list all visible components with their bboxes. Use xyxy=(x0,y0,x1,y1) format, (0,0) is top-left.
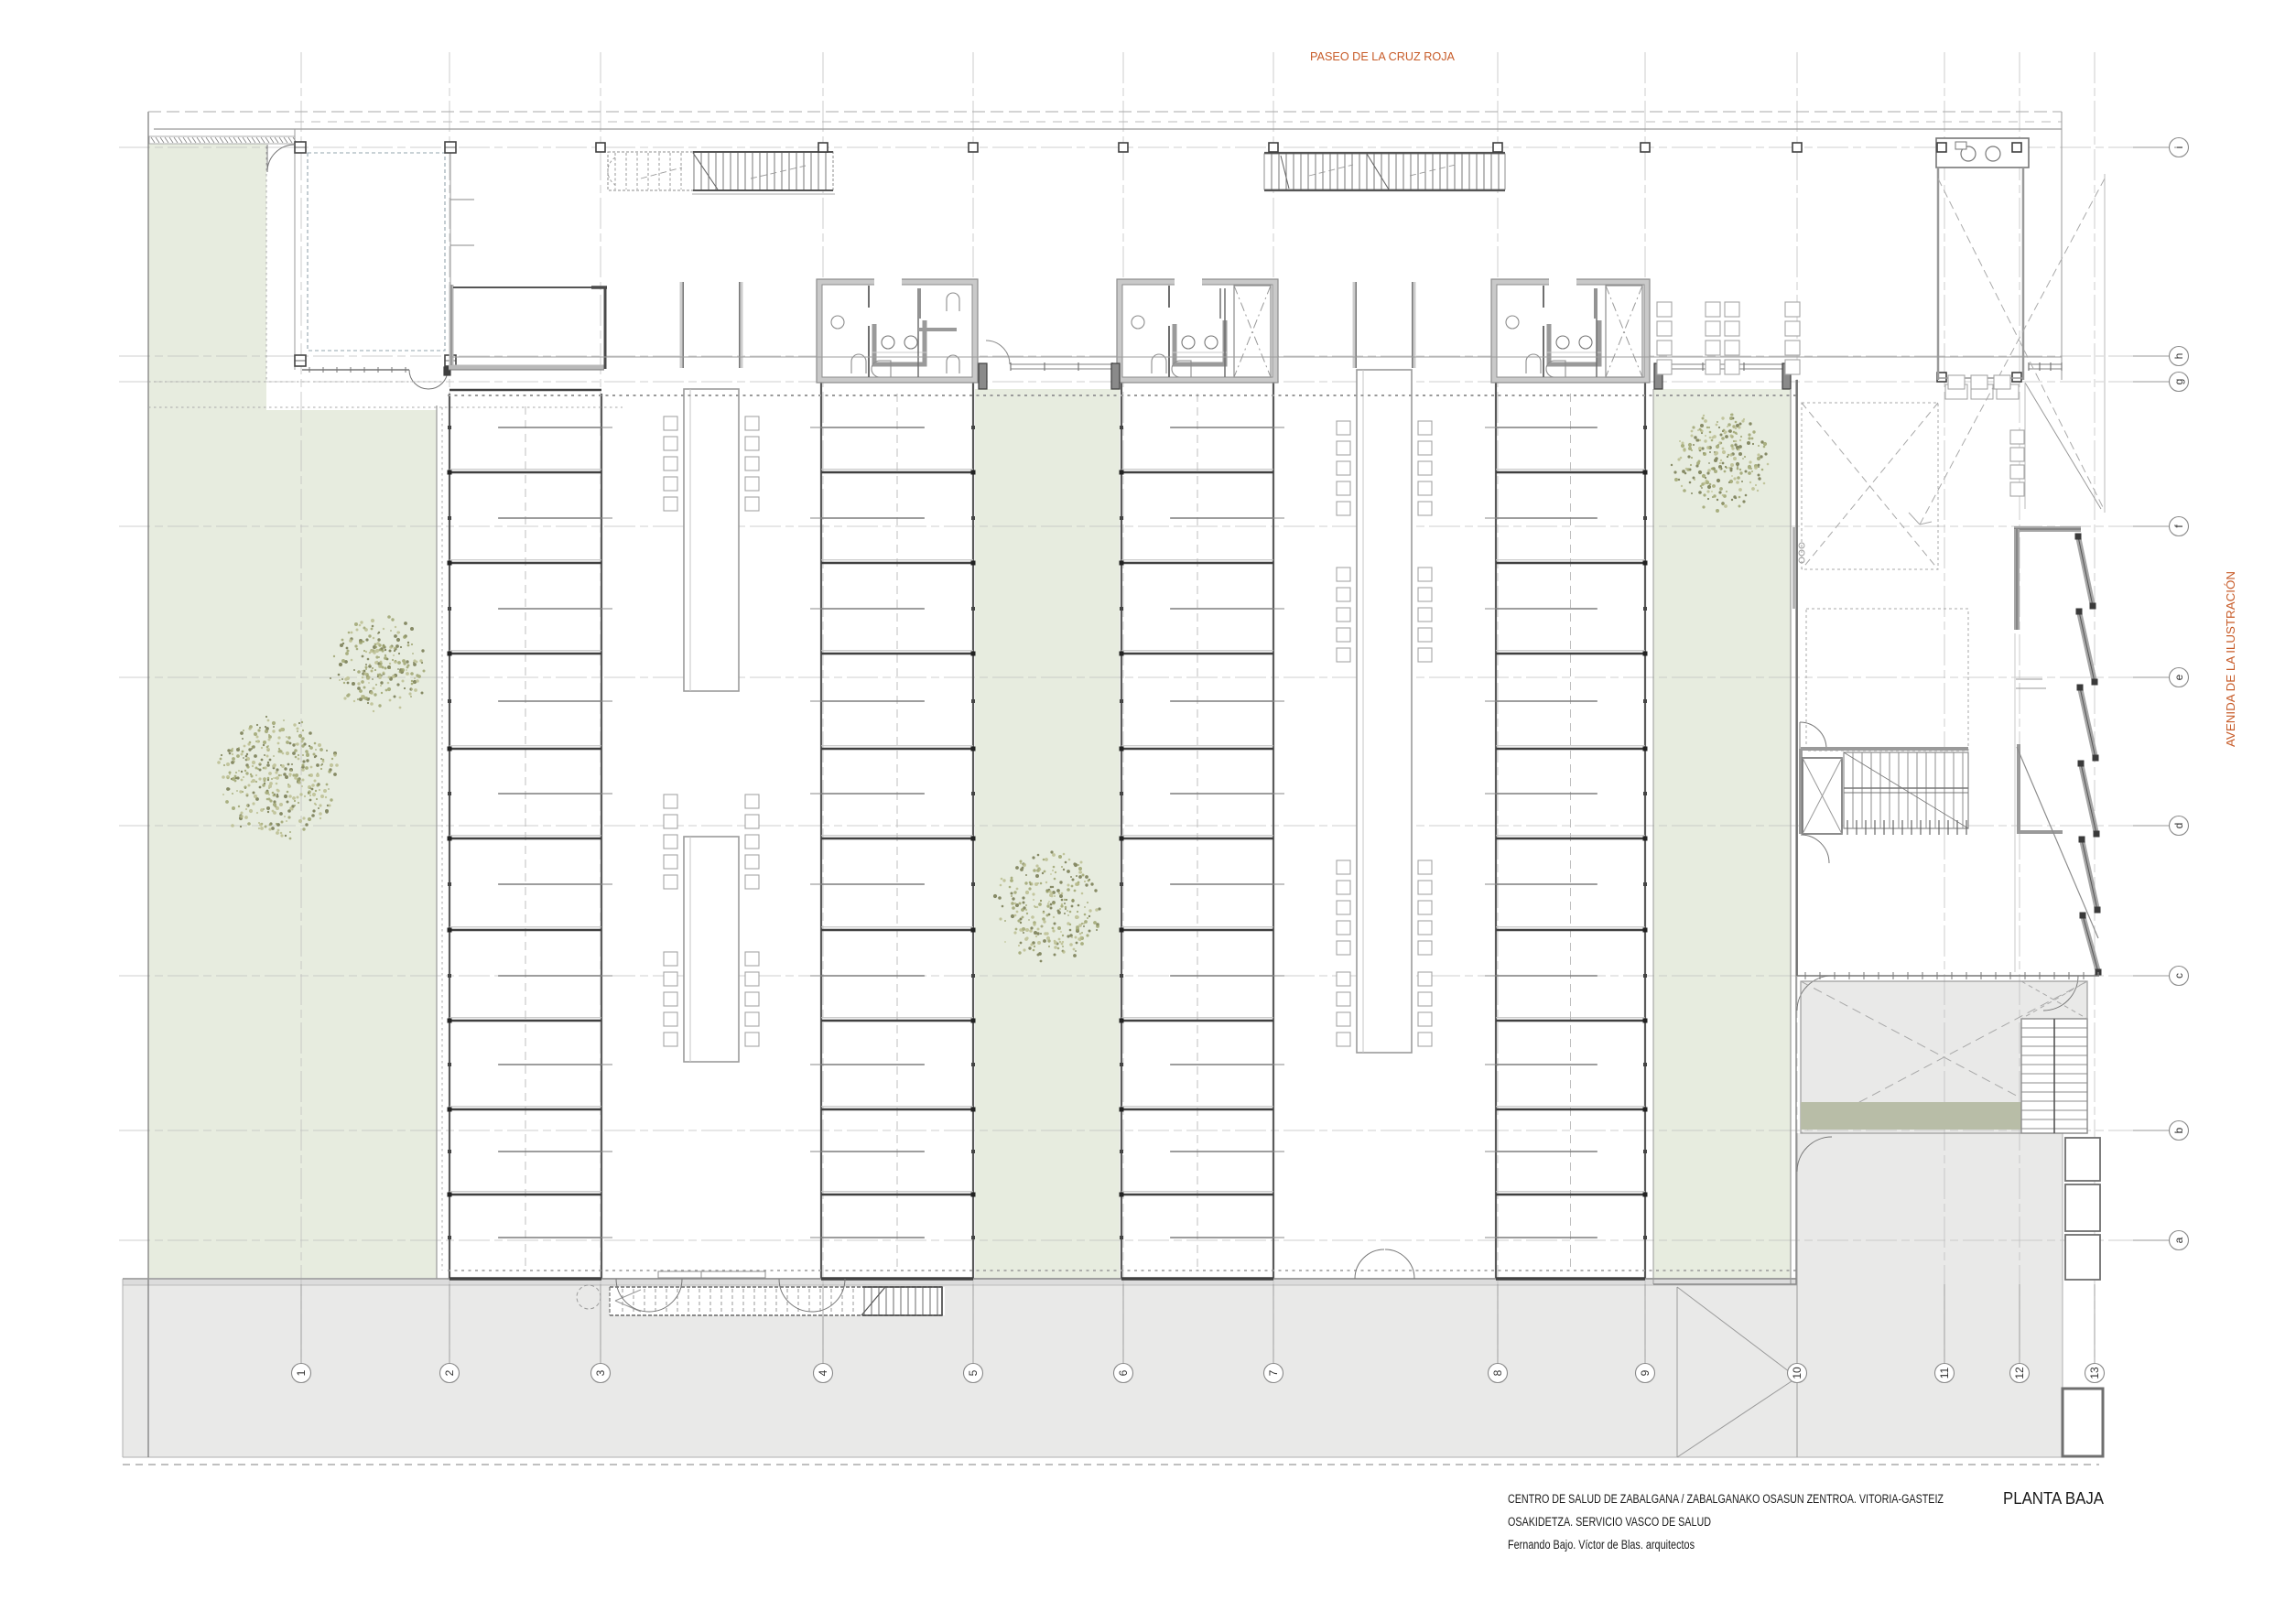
svg-text:g: g xyxy=(2172,379,2185,385)
svg-text:8: 8 xyxy=(1491,1369,1504,1376)
svg-text:6: 6 xyxy=(1117,1369,1130,1376)
svg-text:4: 4 xyxy=(817,1369,829,1376)
svg-text:Fernando Bajo. Víctor de Blas.: Fernando Bajo. Víctor de Blas. arquitect… xyxy=(1508,1538,1695,1552)
svg-text:c: c xyxy=(2172,973,2185,979)
svg-text:12: 12 xyxy=(2013,1367,2026,1379)
svg-text:7: 7 xyxy=(1267,1369,1280,1376)
svg-text:PLANTA BAJA: PLANTA BAJA xyxy=(2003,1489,2104,1508)
svg-text:e: e xyxy=(2172,674,2185,680)
svg-text:10: 10 xyxy=(1791,1367,1803,1379)
svg-text:CENTRO DE SALUD DE ZABALGANA /: CENTRO DE SALUD DE ZABALGANA / ZABALGANA… xyxy=(1508,1492,1944,1506)
svg-text:d: d xyxy=(2172,823,2185,829)
svg-text:h: h xyxy=(2172,353,2185,360)
svg-text:3: 3 xyxy=(594,1369,607,1376)
svg-text:5: 5 xyxy=(967,1369,980,1376)
svg-text:PASEO DE LA CRUZ ROJA: PASEO DE LA CRUZ ROJA xyxy=(1310,50,1456,63)
svg-text:OSAKIDETZA. SERVICIO VASCO DE: OSAKIDETZA. SERVICIO VASCO DE SALUD xyxy=(1508,1515,1711,1529)
svg-text:1: 1 xyxy=(295,1369,308,1376)
svg-text:AVENIDA DE LA ILUSTRACIÓN: AVENIDA DE LA ILUSTRACIÓN xyxy=(2224,571,2237,747)
svg-text:11: 11 xyxy=(1938,1367,1951,1379)
svg-text:2: 2 xyxy=(443,1369,456,1376)
svg-text:a: a xyxy=(2172,1237,2185,1243)
svg-text:b: b xyxy=(2172,1127,2185,1133)
svg-text:9: 9 xyxy=(1639,1369,1652,1376)
svg-text:i: i xyxy=(2172,146,2185,149)
svg-text:13: 13 xyxy=(2088,1367,2101,1379)
